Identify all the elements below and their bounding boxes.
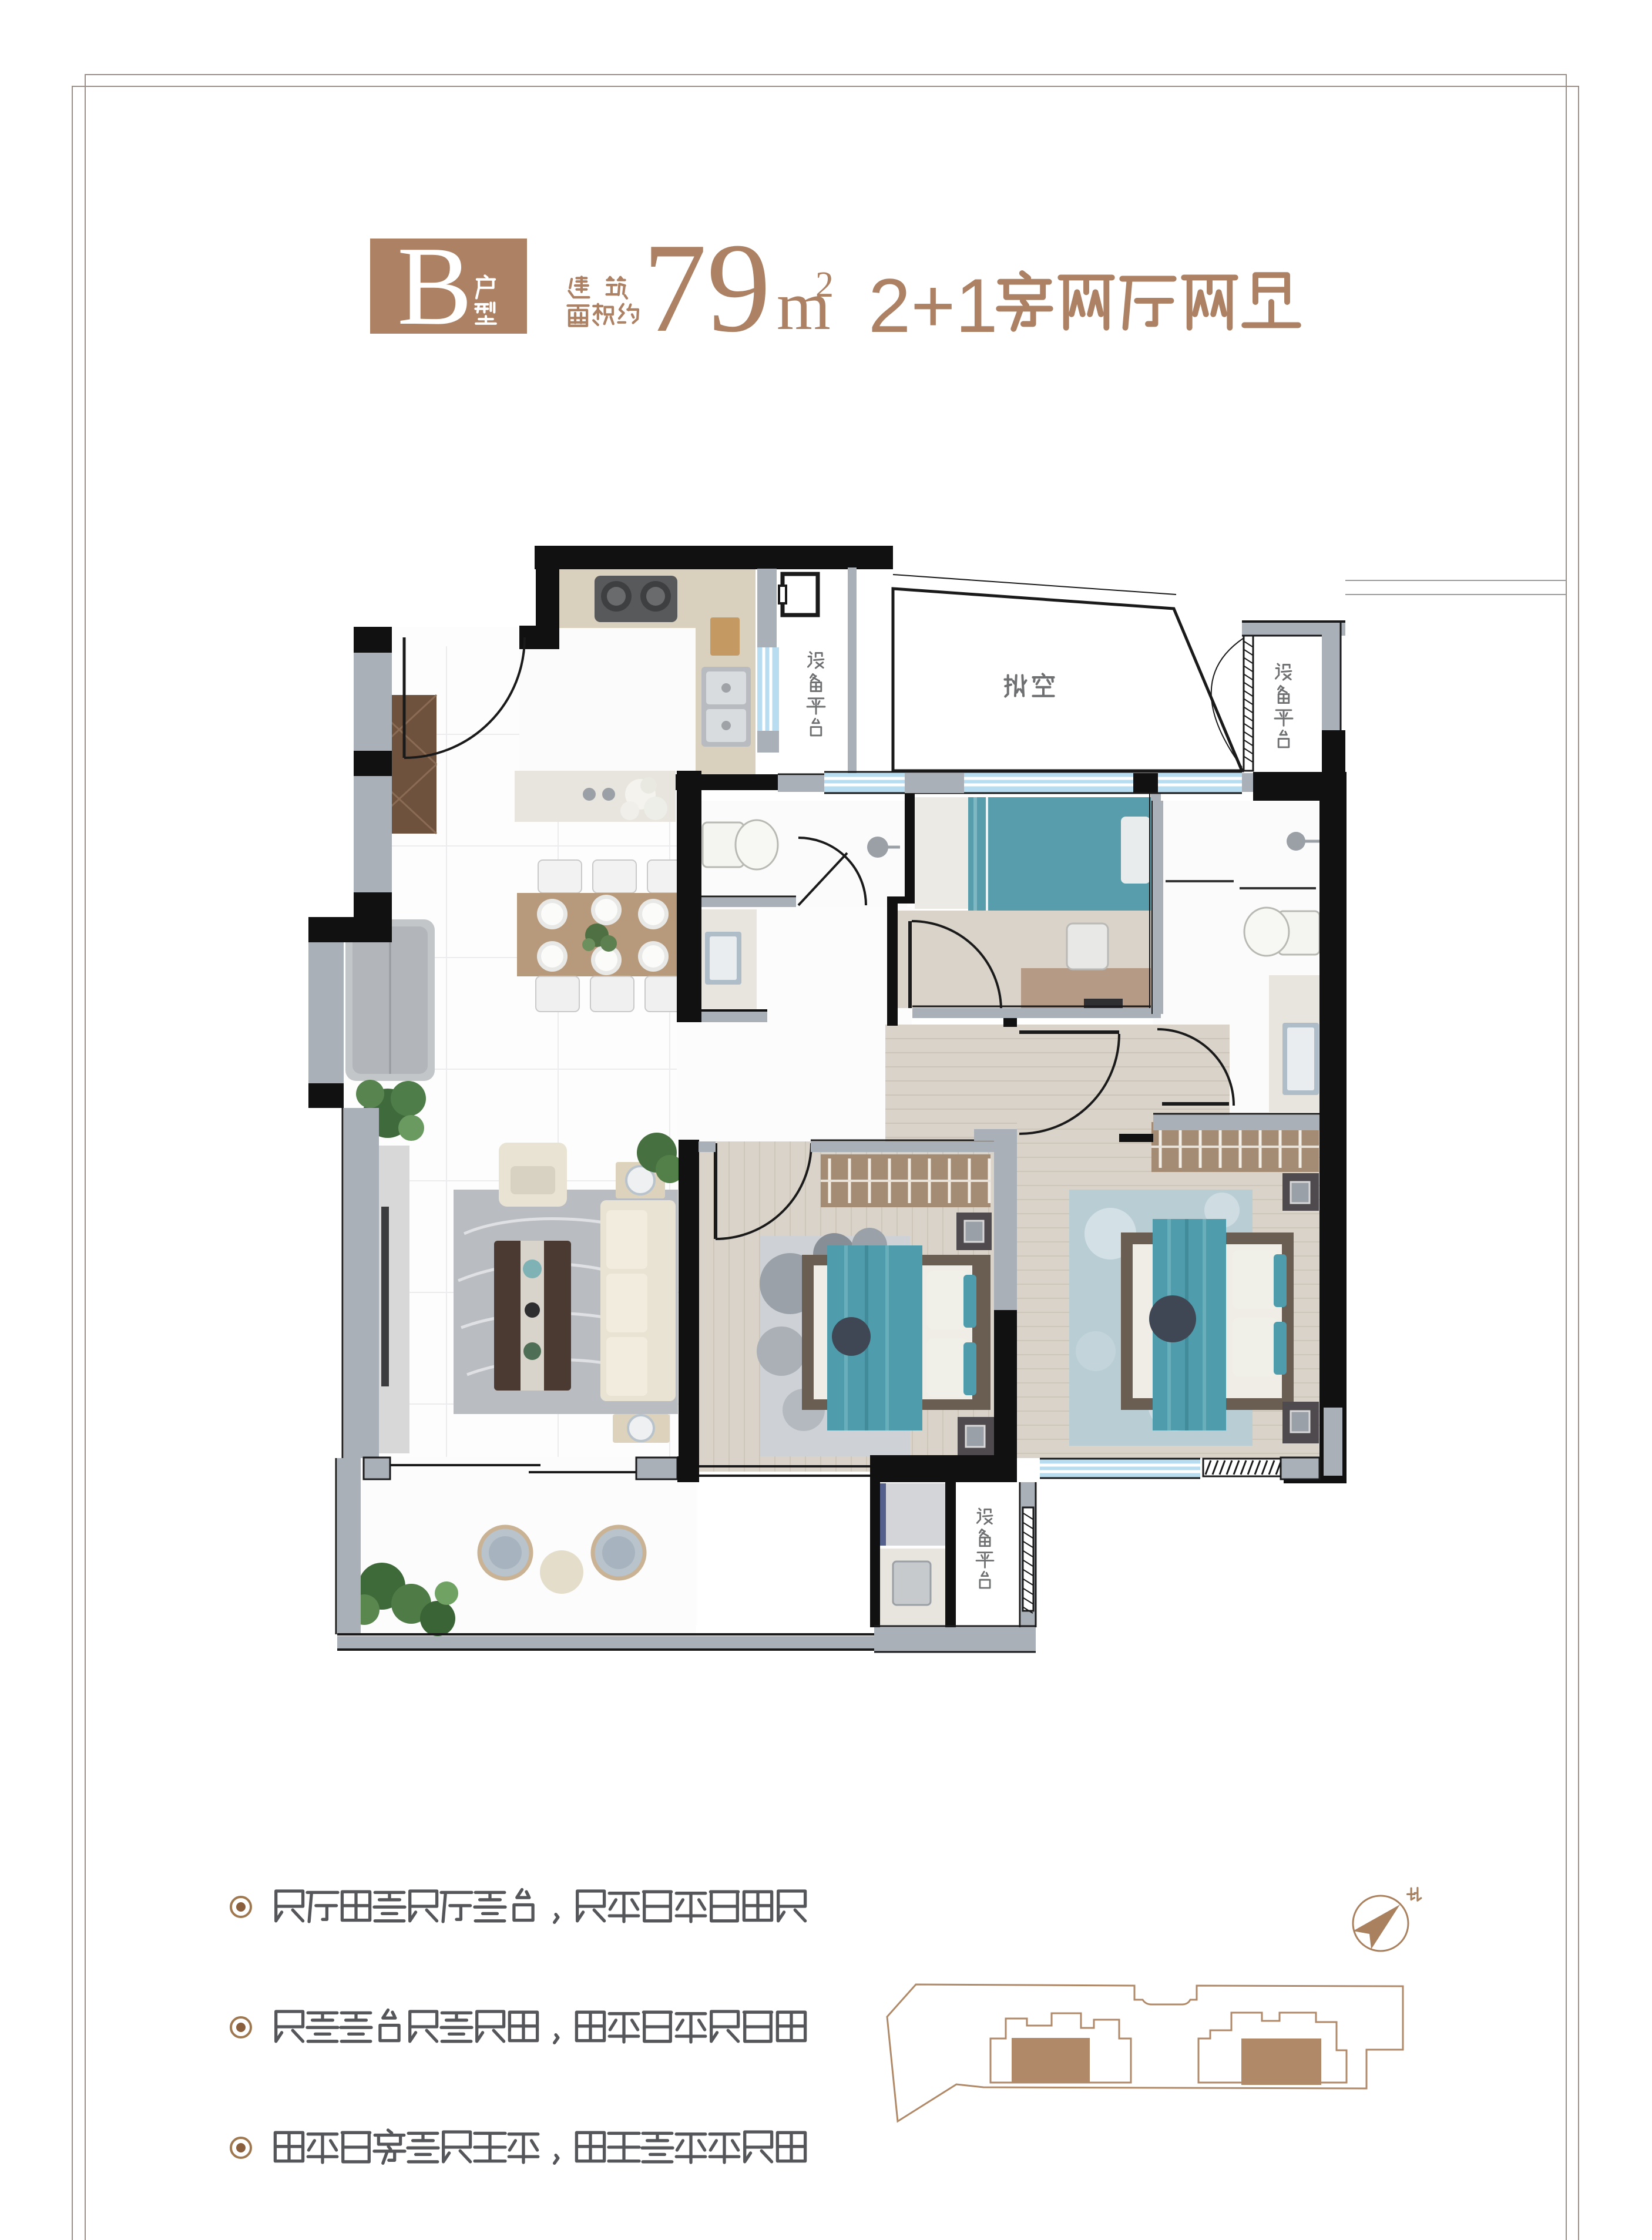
- svg-text:B: B: [397, 223, 472, 348]
- svg-text:2: 2: [815, 265, 834, 305]
- svg-text:2+1: 2+1: [868, 263, 998, 348]
- svg-text:79: 79: [643, 217, 771, 359]
